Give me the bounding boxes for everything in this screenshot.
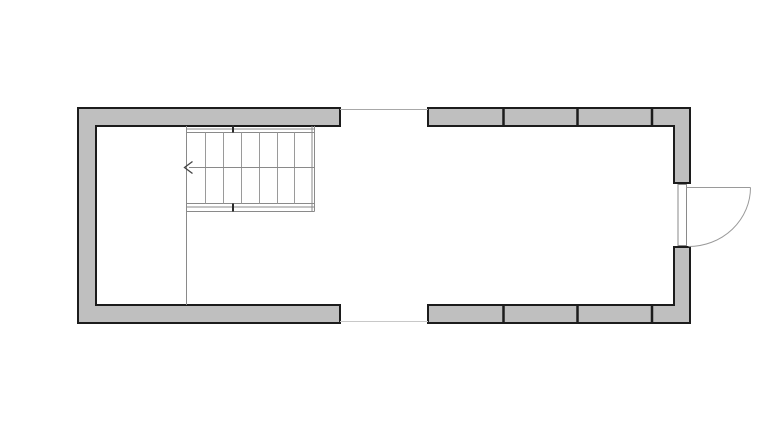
floor-plan (0, 0, 768, 431)
door-frame (678, 185, 687, 246)
wall-top-right-run (428, 108, 690, 183)
wall-left-c-shape (78, 108, 340, 323)
wall-bottom-right-run (428, 247, 690, 323)
door-swing-arc (689, 188, 751, 247)
floor-plan-svg (0, 0, 768, 431)
